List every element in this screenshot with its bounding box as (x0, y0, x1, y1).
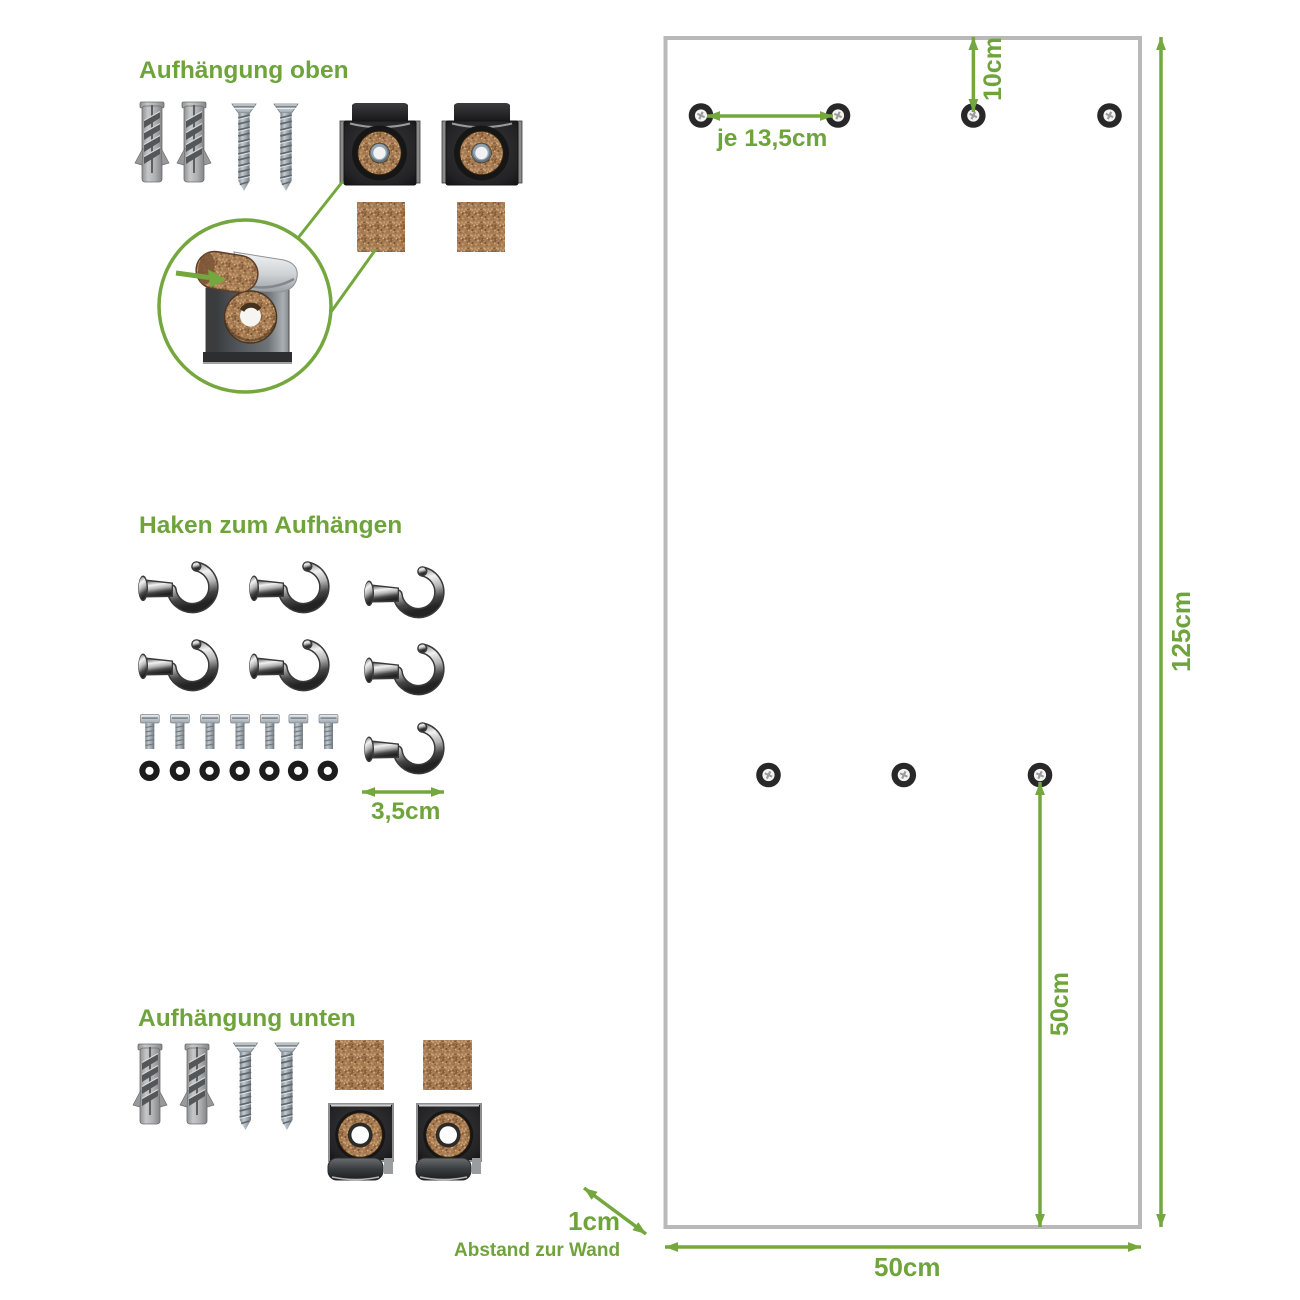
svg-text:Haken zum Aufhängen: Haken zum Aufhängen (139, 512, 402, 539)
svg-text:10cm: 10cm (979, 37, 1007, 101)
svg-text:Aufhängung oben: Aufhängung oben (139, 57, 349, 84)
svg-text:3,5cm: 3,5cm (371, 798, 440, 825)
svg-text:Aufhängung unten: Aufhängung unten (138, 1005, 356, 1032)
svg-text:50cm: 50cm (1046, 972, 1074, 1036)
svg-text:je 13,5cm: je 13,5cm (716, 125, 827, 152)
svg-text:125cm: 125cm (1166, 591, 1196, 672)
svg-text:50cm: 50cm (874, 1252, 941, 1282)
svg-text:Abstand zur Wand: Abstand zur Wand (454, 1240, 620, 1261)
svg-text:1cm: 1cm (568, 1206, 620, 1236)
